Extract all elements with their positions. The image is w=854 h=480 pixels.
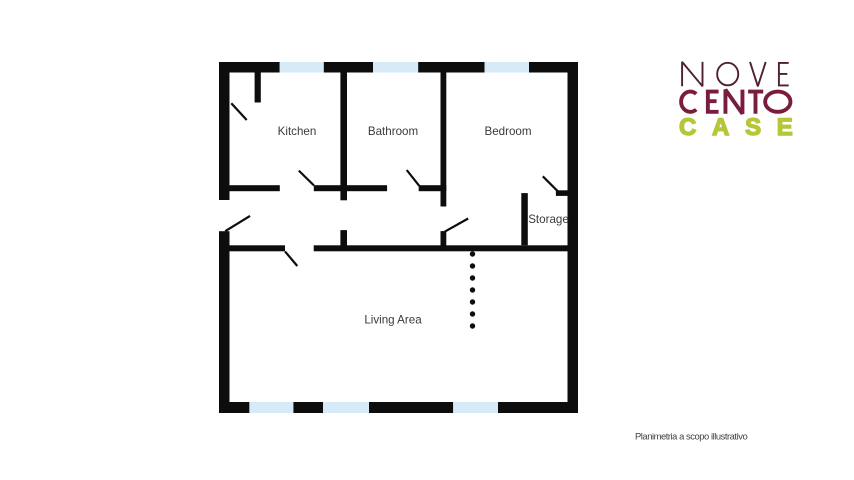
svg-text:Planimetria a scopo illustrati: Planimetria a scopo illustrativo (635, 431, 747, 442)
svg-text:Kitchen: Kitchen (278, 125, 317, 138)
svg-text:CASE: CASE (679, 114, 808, 141)
svg-text:Bedroom: Bedroom (484, 125, 531, 138)
svg-text:Bathroom: Bathroom (368, 125, 418, 138)
svg-text:Living Area: Living Area (364, 314, 422, 327)
svg-text:Storage: Storage (528, 213, 569, 226)
